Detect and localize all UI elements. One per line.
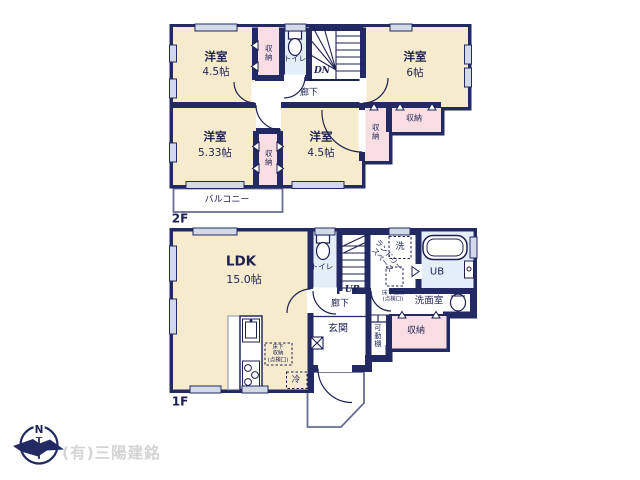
bedroom-sw-floor bbox=[173, 105, 256, 185]
toilet-icon bbox=[289, 31, 302, 56]
washer-label: 洗 bbox=[395, 242, 404, 252]
floor1-plan bbox=[170, 228, 478, 427]
entrance-box-icon bbox=[311, 337, 323, 349]
bedroom-s-floor bbox=[281, 105, 362, 185]
fridge-label: 冷 bbox=[292, 376, 301, 386]
entrance-label: 玄関 bbox=[328, 323, 348, 334]
ldk-hatch-line3: (点検口) bbox=[268, 357, 289, 363]
stairs-up-label: UP bbox=[345, 285, 360, 295]
floor2-label: 2F bbox=[172, 212, 189, 225]
bedroom-sw-size: 5.33帖 bbox=[198, 148, 232, 160]
washbasin-icon bbox=[451, 294, 466, 311]
hallway2-label: 廊下 bbox=[300, 88, 318, 98]
closet-mid-label: 収納 bbox=[264, 150, 272, 167]
washroom-label: 洗面室 bbox=[415, 297, 444, 308]
underfloor-hatch-label: 床下収納 (点検口) bbox=[382, 291, 404, 304]
bedroom-nw-name: 洋室 bbox=[205, 51, 228, 64]
closet-e-vertical-label: 収納 bbox=[371, 124, 379, 141]
hallway1-label: 廊下 bbox=[331, 299, 349, 309]
closet1-label: 収納 bbox=[407, 326, 425, 336]
bedroom-ne-size: 6帖 bbox=[406, 68, 423, 80]
shelf-label: 可動棚 bbox=[373, 324, 381, 348]
kitchen-sink-icon bbox=[243, 319, 260, 342]
entrance-porch-outline bbox=[308, 372, 365, 427]
underfloor-hatch-line2: (点検口) bbox=[382, 297, 404, 303]
bedroom-sw-name: 洋室 bbox=[204, 131, 227, 144]
north-label: N bbox=[34, 425, 45, 437]
toilet2-label: トイレ bbox=[284, 55, 307, 63]
stairs-dn-label: DN bbox=[314, 66, 330, 76]
ldk-name: LDK bbox=[226, 254, 256, 269]
bedroom-ne-name: 洋室 bbox=[404, 51, 427, 64]
toilet1-label: トイレ bbox=[311, 263, 334, 271]
bath-label: UB bbox=[430, 266, 444, 277]
bedroom-nw-size: 4.5帖 bbox=[202, 67, 229, 79]
kitchen-counter bbox=[228, 316, 262, 390]
toilet-icon bbox=[317, 235, 330, 260]
bedroom-s-name: 洋室 bbox=[310, 131, 333, 144]
company-watermark: (有)三陽建銘 bbox=[62, 441, 161, 463]
stove-icon bbox=[243, 361, 260, 387]
balcony-label: バルコニー bbox=[205, 195, 250, 205]
ldk-hatch-label: 床下 収納 (点検口) bbox=[268, 345, 289, 364]
ldk-size: 15.0帖 bbox=[226, 274, 262, 286]
closet-e-horizontal-label: 収納 bbox=[406, 115, 422, 124]
closet-nw-label: 収納 bbox=[264, 45, 272, 62]
floorplan-canvas: 洋室 4.5帖 洋室 6帖 洋室 5.33帖 洋室 4.5帖 収納 トイレ DN… bbox=[0, 0, 640, 480]
bedroom-s-size: 4.5帖 bbox=[307, 148, 334, 160]
floor1-label: 1F bbox=[172, 395, 189, 408]
